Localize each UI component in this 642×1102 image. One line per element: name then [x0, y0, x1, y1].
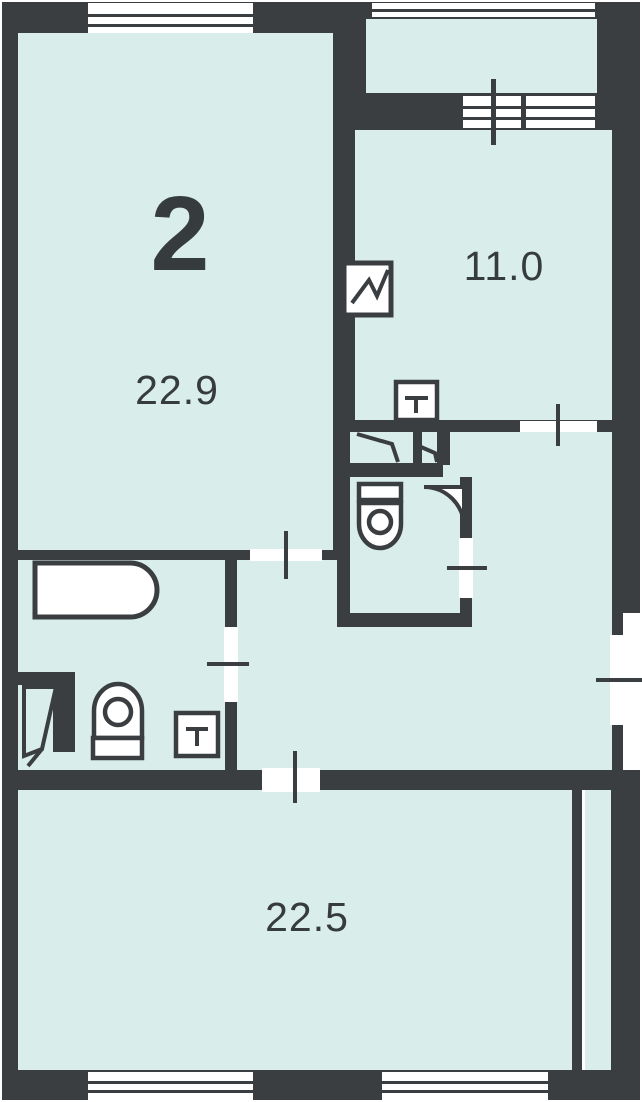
room-area-label: 22.9 — [135, 367, 219, 413]
wardrobe-right-wall — [437, 429, 450, 465]
door-opening — [262, 768, 320, 792]
washbasin-icon — [176, 713, 218, 756]
sink-icon — [396, 382, 437, 420]
window — [88, 1072, 253, 1100]
entry-niche-side-wall — [53, 672, 75, 752]
toilet-icon — [93, 684, 142, 758]
floor-plan: 2 22.9 11.0 22.5 — [0, 0, 642, 1102]
wc-bottom-wall — [337, 613, 472, 627]
wc-top-wall — [337, 463, 443, 477]
apartment-number-label: 2 — [151, 175, 210, 293]
bathtub-icon — [35, 563, 157, 617]
hallway-left-floor — [237, 560, 337, 770]
niche-strip-floor — [585, 790, 611, 1070]
window — [382, 1072, 548, 1100]
balcony-slab — [366, 19, 597, 93]
stove-icon — [344, 263, 391, 315]
niche-strip-edge — [582, 790, 585, 1070]
window — [88, 3, 253, 33]
entrance-recess — [623, 613, 642, 770]
toilet-icon — [359, 484, 401, 548]
floor-plan-canvas: 2 22.9 11.0 22.5 — [0, 0, 642, 1102]
wc-left-wall — [337, 477, 350, 627]
room-area-label: 11.0 — [464, 243, 545, 289]
room-area-label: 22.5 — [265, 894, 349, 940]
